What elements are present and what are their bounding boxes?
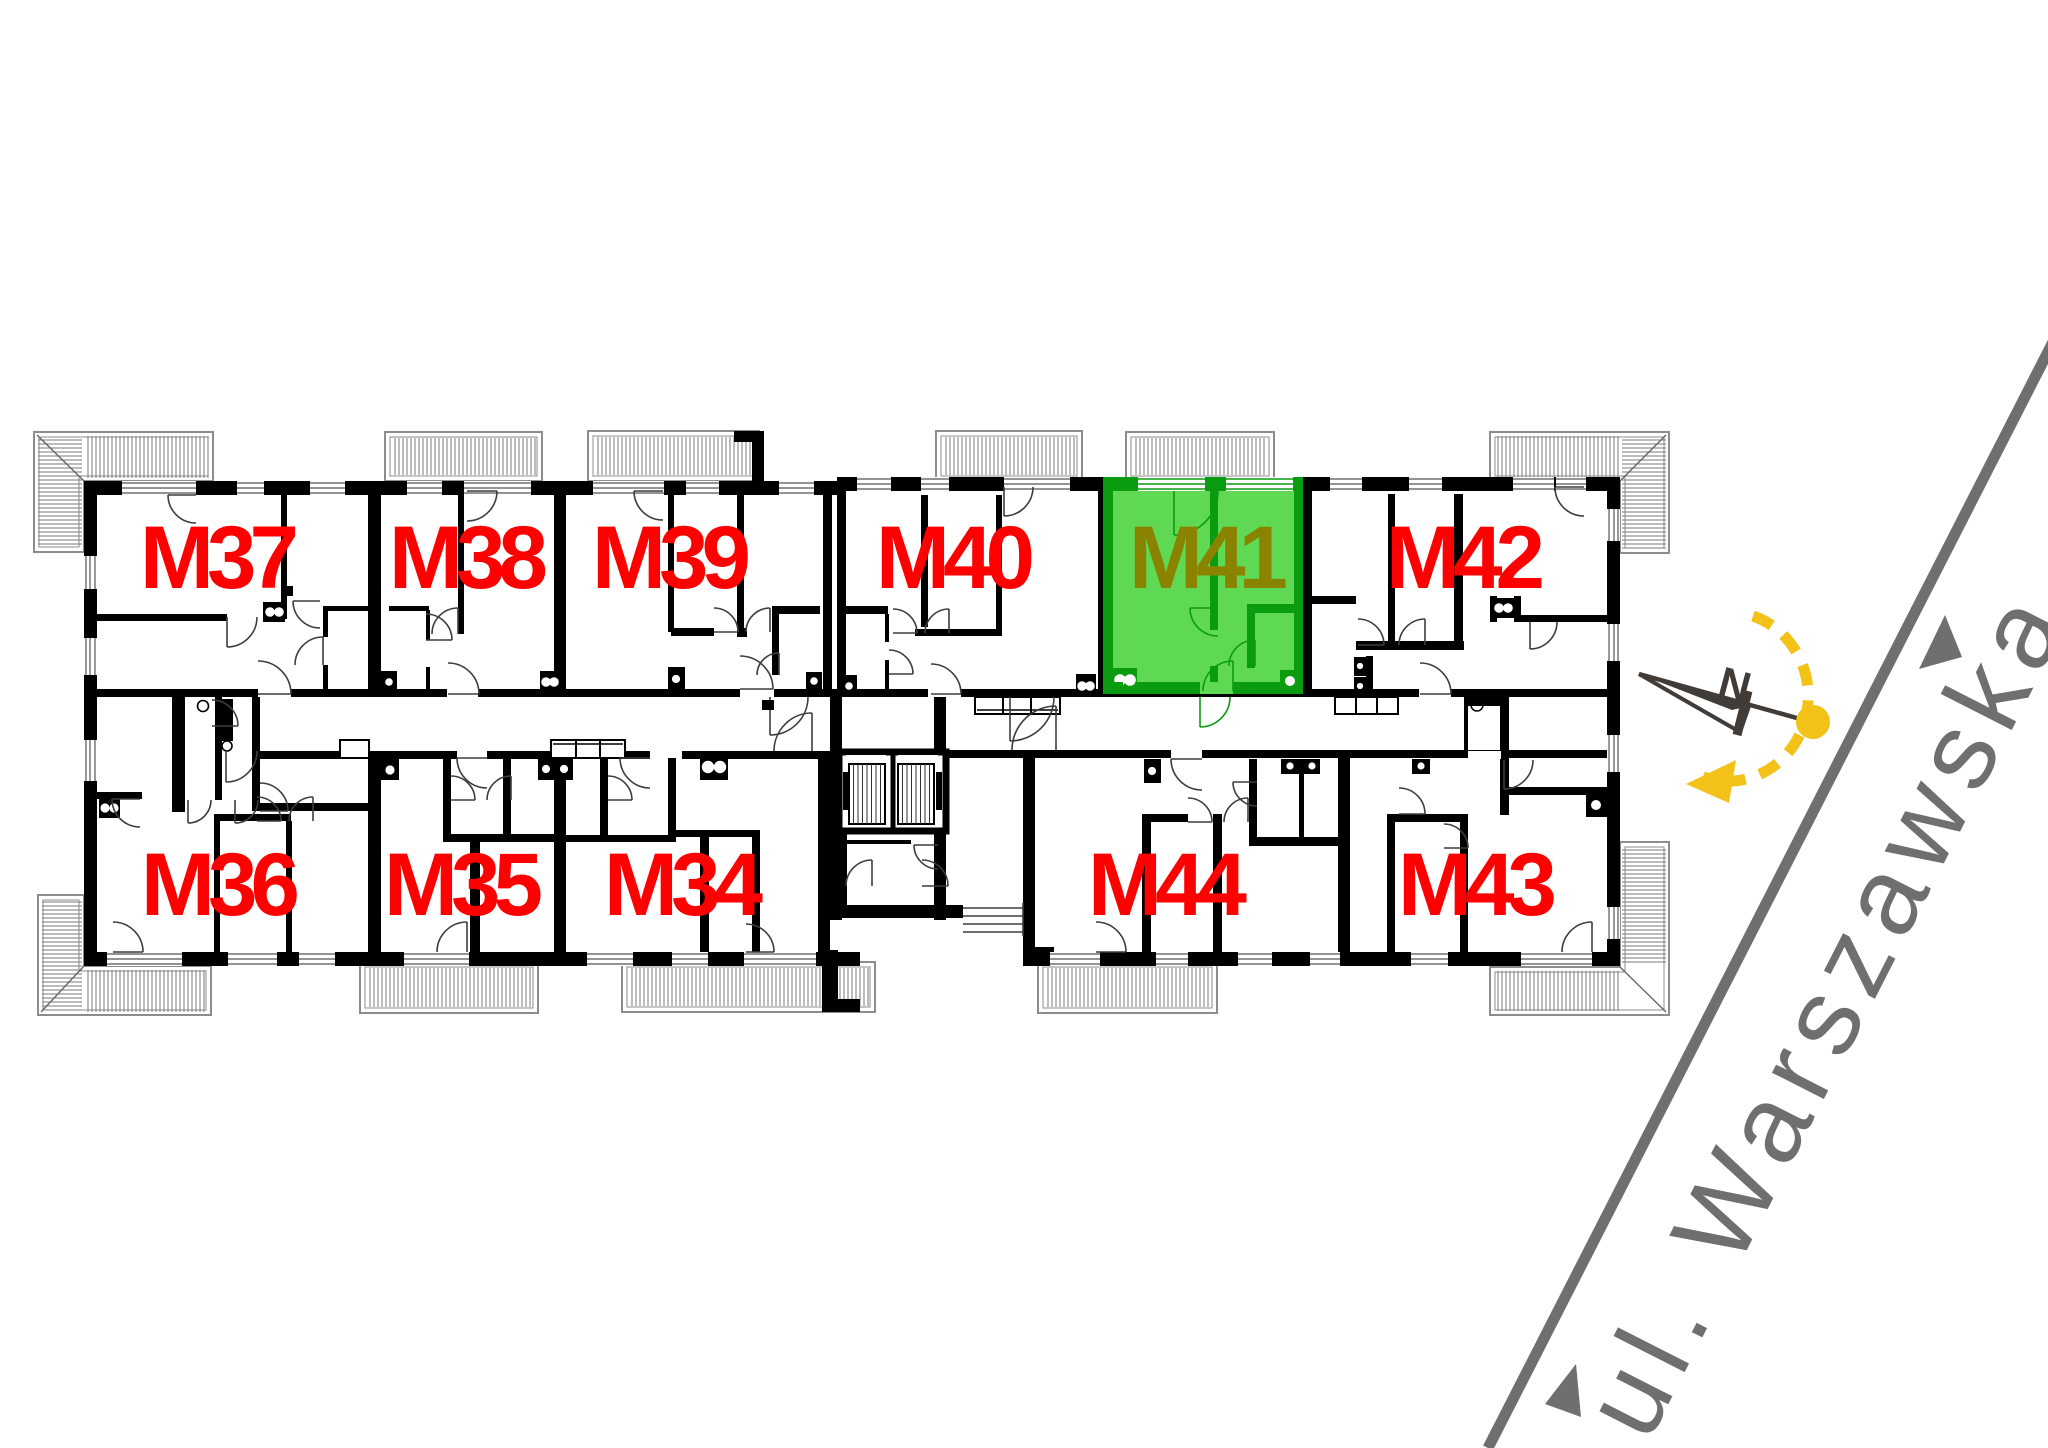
svg-text:M41: M41 <box>1129 507 1287 607</box>
svg-text:M44: M44 <box>1088 834 1248 934</box>
svg-text:M36: M36 <box>141 834 298 934</box>
svg-text:M37: M37 <box>140 507 296 607</box>
svg-text:M34: M34 <box>604 834 764 934</box>
svg-text:M42: M42 <box>1386 507 1542 607</box>
svg-text:M35: M35 <box>384 834 542 934</box>
svg-text:M43: M43 <box>1398 834 1555 934</box>
svg-text:M39: M39 <box>592 507 749 607</box>
svg-text:M40: M40 <box>876 507 1032 607</box>
svg-text:M38: M38 <box>389 507 546 607</box>
